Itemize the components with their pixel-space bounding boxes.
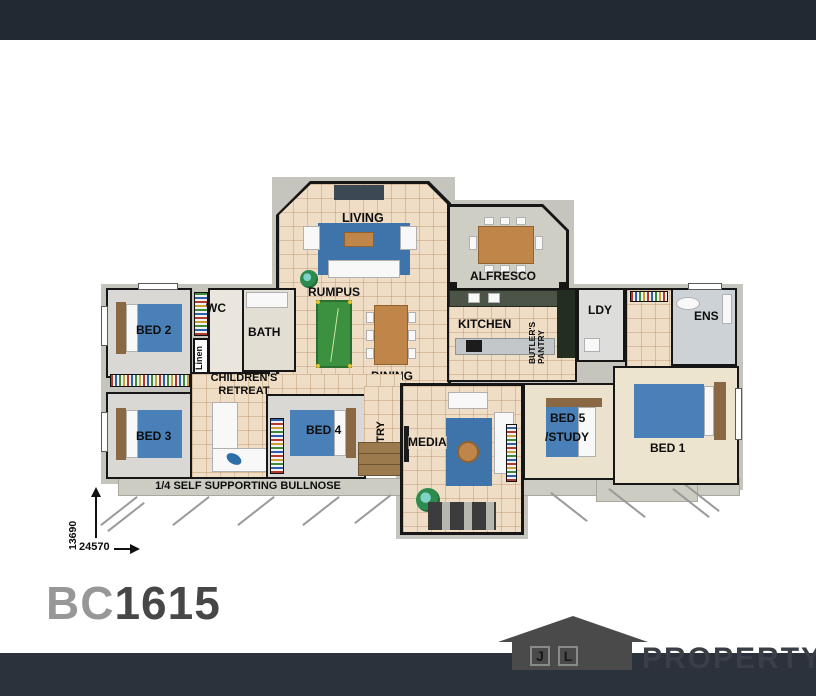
entry-porch-steps [358, 442, 402, 476]
dining-chair [366, 330, 374, 341]
media-cabinet [448, 392, 488, 409]
dining-chair [408, 312, 416, 323]
room-label-bath: BATH [248, 326, 280, 339]
brand-name: PROPERTY [642, 642, 816, 676]
pool-table [316, 300, 352, 368]
floor-plan: 1/4 SELF SUPPORTING BULLNOSE LIVING RUMP… [0, 40, 816, 600]
retreat-sofa [212, 448, 272, 472]
dimension-depth: 13690 [68, 521, 79, 550]
room-label-rumpus: RUMPUS [308, 286, 360, 299]
room-label-ldy: LDY [588, 304, 612, 317]
window [101, 306, 108, 346]
bath-tub [246, 292, 288, 308]
alfresco-chair [500, 217, 510, 225]
bookshelf [110, 374, 190, 387]
alfresco-table [478, 226, 534, 264]
alfresco-chair [469, 236, 477, 250]
window [101, 412, 108, 452]
pool-pocket [316, 300, 320, 304]
coffee-table [344, 232, 374, 247]
bed1-bed [634, 384, 704, 438]
plan-code-prefix: BC [46, 577, 114, 629]
dimension-width: 24570 [79, 542, 110, 554]
bed3-headboard [116, 408, 126, 460]
drive-line [237, 496, 274, 526]
cooktop [466, 340, 482, 352]
bed1-headboard [714, 382, 726, 440]
page: 1/4 SELF SUPPORTING BULLNOSE LIVING RUMP… [0, 0, 816, 696]
drive-line [354, 494, 391, 524]
room-label-bed2: BED 2 [136, 324, 171, 337]
room-label-bed5-2: /STUDY [545, 431, 589, 444]
drive-line [172, 496, 209, 526]
kitchen-sink [488, 293, 500, 303]
bed4-headboard [346, 408, 356, 458]
brand-initial-j: J [530, 646, 550, 666]
bed5-headboard [546, 398, 602, 407]
arrow-up-icon [91, 487, 101, 497]
header-bar [0, 0, 816, 40]
room-label-retreat-1: CHILDREN'S [204, 373, 284, 385]
label-linen-robe: Linen [195, 346, 204, 370]
plan-code-suffix: 1615 [114, 577, 220, 629]
media-porch-tiles [428, 502, 496, 530]
dimension-line-vertical [95, 496, 97, 538]
bed2-headboard [116, 302, 126, 354]
dining-chair [408, 330, 416, 341]
dining-chair [366, 348, 374, 359]
alfresco-chair [535, 236, 543, 250]
dimension-line-horizontal [114, 548, 131, 550]
room-label-butlers-pantry: BUTLER'S PANTRY [528, 322, 546, 364]
bullnose-label: 1/4 SELF SUPPORTING BULLNOSE [133, 481, 363, 493]
room-label-wc: WC [206, 302, 226, 315]
armchair [400, 226, 417, 250]
brand-initial-l: L [558, 646, 578, 666]
media-shelf [506, 424, 517, 482]
alfresco-chair [516, 217, 526, 225]
drive-line [550, 492, 587, 522]
dining-chair [408, 348, 416, 359]
armchair [303, 226, 320, 250]
ensuite-vanity [722, 294, 732, 324]
dining-table [374, 305, 408, 365]
pantry-shelving [557, 290, 575, 358]
plan-code: BC1615 [46, 576, 221, 630]
pool-pocket [348, 300, 352, 304]
room-label-bed5-1: BED 5 [550, 412, 585, 425]
sofa [328, 260, 400, 278]
house-icon [498, 616, 648, 642]
room-label-living: LIVING [342, 212, 384, 225]
window [735, 388, 742, 440]
media-round-table [457, 441, 479, 463]
room-label-ens: ENS [694, 310, 719, 323]
room-label-alfresco: ALFRESCO [470, 270, 536, 283]
drive-line [302, 496, 339, 526]
pool-pocket [316, 364, 320, 368]
entertainment-unit [334, 185, 384, 200]
washer [584, 338, 600, 352]
room-label-media: MEDIA [408, 436, 447, 449]
room-label-bed3: BED 3 [136, 430, 171, 443]
room-label-bed4: BED 4 [306, 424, 341, 437]
pool-pocket [348, 364, 352, 368]
bed4-robe [270, 418, 284, 474]
hall-robe [630, 291, 668, 302]
alfresco-chair [484, 217, 494, 225]
room-label-kitchen: KITCHEN [458, 318, 511, 331]
kitchen-sink [468, 293, 480, 303]
window [138, 283, 178, 290]
bed1-pillows [704, 386, 714, 436]
window [688, 283, 722, 290]
dining-chair [366, 312, 374, 323]
arrow-right-icon [130, 544, 140, 554]
room-label-bed1: BED 1 [650, 442, 685, 455]
